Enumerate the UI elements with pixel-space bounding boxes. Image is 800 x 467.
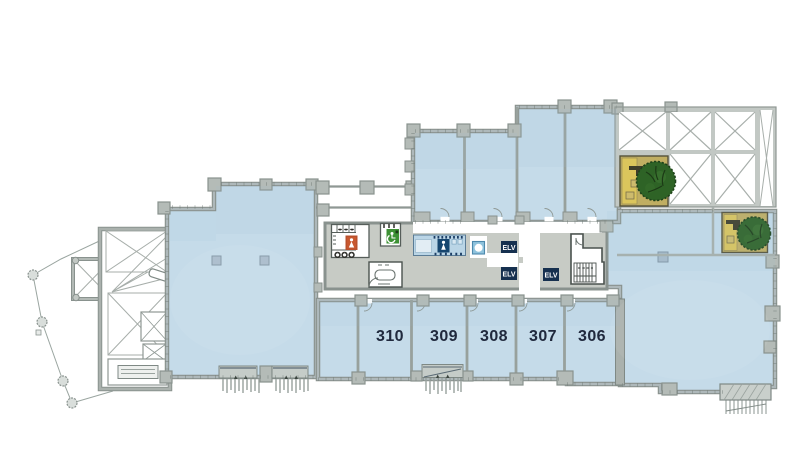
svg-text:306: 306 [578, 328, 606, 345]
svg-text:ELV: ELV [544, 273, 557, 280]
svg-text:ELV: ELV [502, 272, 515, 279]
svg-text:ELV: ELV [502, 245, 515, 252]
svg-text:307: 307 [529, 328, 557, 345]
svg-text:310: 310 [376, 328, 404, 345]
svg-text:308: 308 [480, 328, 508, 345]
svg-text:309: 309 [430, 328, 458, 345]
